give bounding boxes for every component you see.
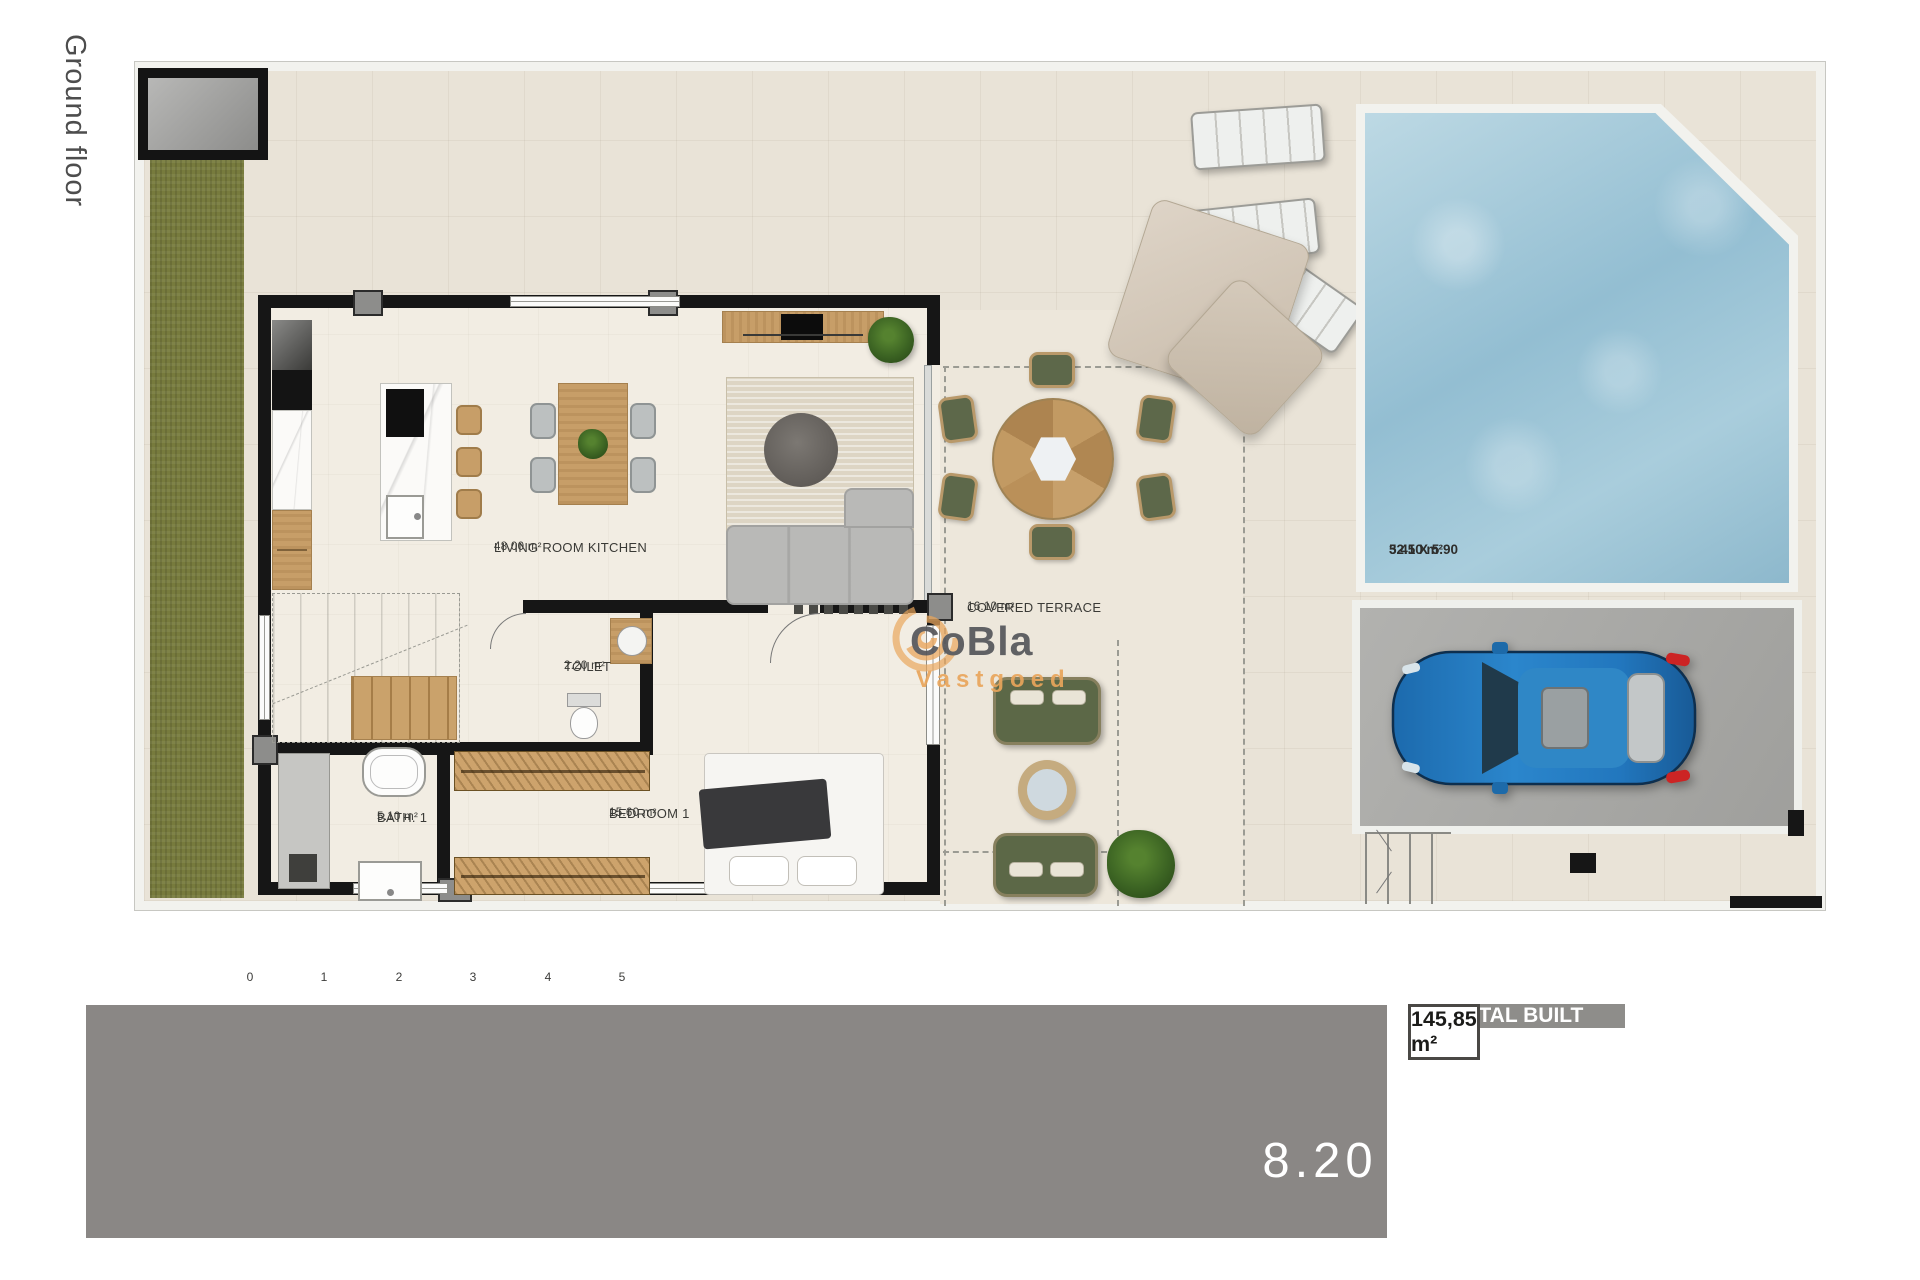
stairs xyxy=(272,593,460,743)
dining-chair xyxy=(530,403,556,439)
bar-stool xyxy=(456,489,482,519)
car xyxy=(1390,642,1700,794)
door-arc-toilet xyxy=(490,613,526,649)
bed-throw xyxy=(699,779,832,850)
terrace-chair xyxy=(937,394,979,445)
house-footprint xyxy=(258,295,940,895)
window-left xyxy=(259,615,270,720)
sofa xyxy=(726,525,914,605)
sun-lounger xyxy=(1190,103,1326,170)
wall-left xyxy=(258,295,271,895)
footer-band: 8.20 xyxy=(86,1005,1387,1238)
wall-toilet-top xyxy=(523,600,653,613)
table-row-value: 145,85 m² xyxy=(1408,1004,1480,1060)
scale-tick: 4 xyxy=(545,970,552,984)
terrace-chair xyxy=(937,472,979,523)
scale-bar: 0 1 2 3 4 5 xyxy=(250,952,622,988)
scale-tick: 5 xyxy=(619,970,626,984)
pillow xyxy=(729,856,789,886)
scale-tick: 2 xyxy=(396,970,403,984)
toilet-vanity xyxy=(610,618,652,664)
floor-title: Ground floor xyxy=(58,34,91,207)
grass-strip xyxy=(150,158,244,898)
wall-right-top xyxy=(927,295,940,365)
scale-bar-segments xyxy=(250,954,622,967)
watermark-sub: Vastgoed xyxy=(916,666,1071,694)
dining-chair xyxy=(630,457,656,493)
pillow xyxy=(797,856,857,886)
wall-bath-bedroom xyxy=(437,742,450,895)
terrace-chair xyxy=(1029,524,1075,560)
tv xyxy=(781,314,823,340)
window-top xyxy=(510,296,680,307)
garden-bush xyxy=(1107,830,1175,898)
kitchen-counter xyxy=(272,410,312,510)
entrance-porch xyxy=(138,68,268,160)
kitchen-sink xyxy=(386,495,424,539)
terrace-dashed-right xyxy=(1243,366,1245,906)
bar-stool xyxy=(456,447,482,477)
bed xyxy=(704,753,884,895)
terrace-chair xyxy=(1029,352,1075,388)
wall-pillar xyxy=(353,290,383,316)
wc-tank xyxy=(567,693,601,707)
exterior-steps xyxy=(1365,832,1451,904)
bath-sink xyxy=(358,861,422,901)
shower-head xyxy=(289,854,317,882)
wardrobe xyxy=(454,857,650,895)
toilet-basin xyxy=(617,626,647,656)
bar-stool xyxy=(456,405,482,435)
watermark: CoBla Vastgoed xyxy=(880,596,1110,716)
floorplan-page: Ground floor xyxy=(0,0,1920,1280)
pool-water xyxy=(1365,113,1789,583)
cooktop xyxy=(386,389,424,437)
coffee-table xyxy=(1018,760,1076,820)
stair-treads xyxy=(351,676,457,740)
wardrobe xyxy=(454,751,650,791)
kitchen-cabinet xyxy=(272,510,312,590)
entrance-gate xyxy=(1730,896,1822,908)
tv-console xyxy=(722,311,884,343)
scale-tick: 3 xyxy=(470,970,477,984)
outdoor-shower xyxy=(1570,853,1596,873)
table-plant xyxy=(578,429,608,459)
terrace-chair xyxy=(1135,394,1177,445)
gate-post xyxy=(1788,810,1804,836)
scale-tick: 0 xyxy=(247,970,254,984)
round-rug xyxy=(764,413,838,487)
pool xyxy=(1356,104,1798,592)
shower xyxy=(278,753,330,889)
dining-chair xyxy=(630,403,656,439)
corner-plant xyxy=(868,317,914,363)
sofa-chaise xyxy=(844,488,914,528)
oven xyxy=(272,370,312,410)
watermark-brand: CoBla xyxy=(910,618,1033,665)
plot-number: 8.20 xyxy=(1240,1133,1400,1189)
wc-bowl xyxy=(570,707,598,739)
dining-chair xyxy=(530,457,556,493)
outdoor-sofa xyxy=(993,833,1098,897)
fridge xyxy=(272,320,312,370)
scale-tick: 1 xyxy=(321,970,328,984)
sliding-door-glass xyxy=(924,365,932,610)
door-arc-bedroom xyxy=(770,613,820,663)
bathtub xyxy=(362,747,426,797)
terrace-chair xyxy=(1135,472,1177,523)
